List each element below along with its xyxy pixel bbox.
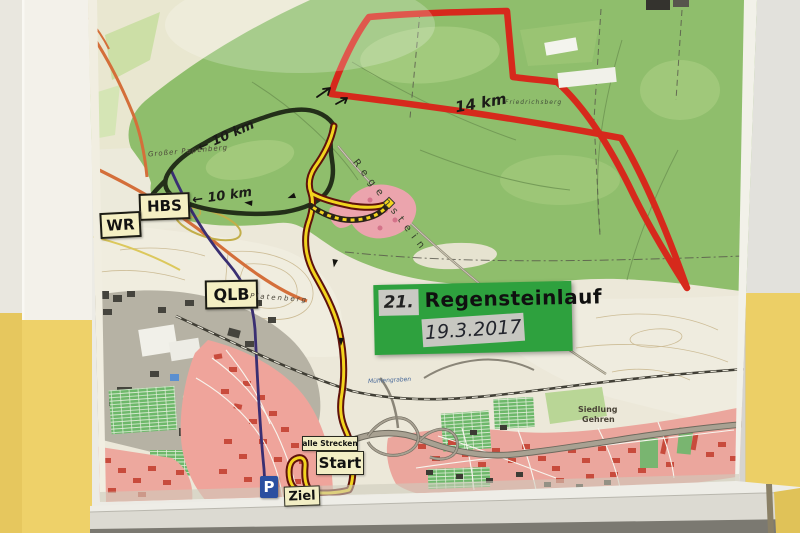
event-number: 21. bbox=[383, 292, 414, 313]
parking-sign: P bbox=[260, 476, 278, 498]
event-sign: 21. Regensteinlauf 19.3.2017 bbox=[373, 281, 572, 355]
start-label: Start bbox=[319, 456, 362, 471]
road-sign-hbs-label: HBS bbox=[147, 198, 182, 214]
road-sign-wr: WR bbox=[99, 211, 141, 239]
road-sign-hbs: HBS bbox=[139, 192, 191, 221]
all-courses-sign: alle Strecken bbox=[302, 436, 358, 451]
start-sign: Start bbox=[316, 451, 364, 475]
finish-label: Ziel bbox=[288, 489, 316, 503]
road-sign-wr-label: WR bbox=[106, 217, 135, 233]
place-label-friedrichsberg: Friedrichsberg bbox=[505, 100, 562, 106]
all-courses-label: alle Strecken bbox=[302, 440, 357, 448]
event-number-patch: 21. bbox=[378, 289, 419, 316]
arrow-lower: ← bbox=[191, 192, 204, 208]
place-label-gehren: Gehren bbox=[582, 416, 615, 424]
finish-sign: Ziel bbox=[284, 485, 321, 506]
road-sign-qlb-label: QLB bbox=[213, 286, 249, 303]
place-label-siedlung: Siedlung bbox=[578, 406, 618, 414]
event-date-patch: 19.3.2017 bbox=[421, 313, 525, 348]
parking-label: P bbox=[264, 478, 275, 496]
event-title: Regensteinlauf bbox=[424, 284, 602, 312]
photo-of-course-map: HBS WR QLB alle Strecken Start Ziel P 21… bbox=[0, 0, 800, 533]
map-graphic bbox=[0, 0, 800, 533]
event-date: 19.3.2017 bbox=[424, 316, 522, 344]
